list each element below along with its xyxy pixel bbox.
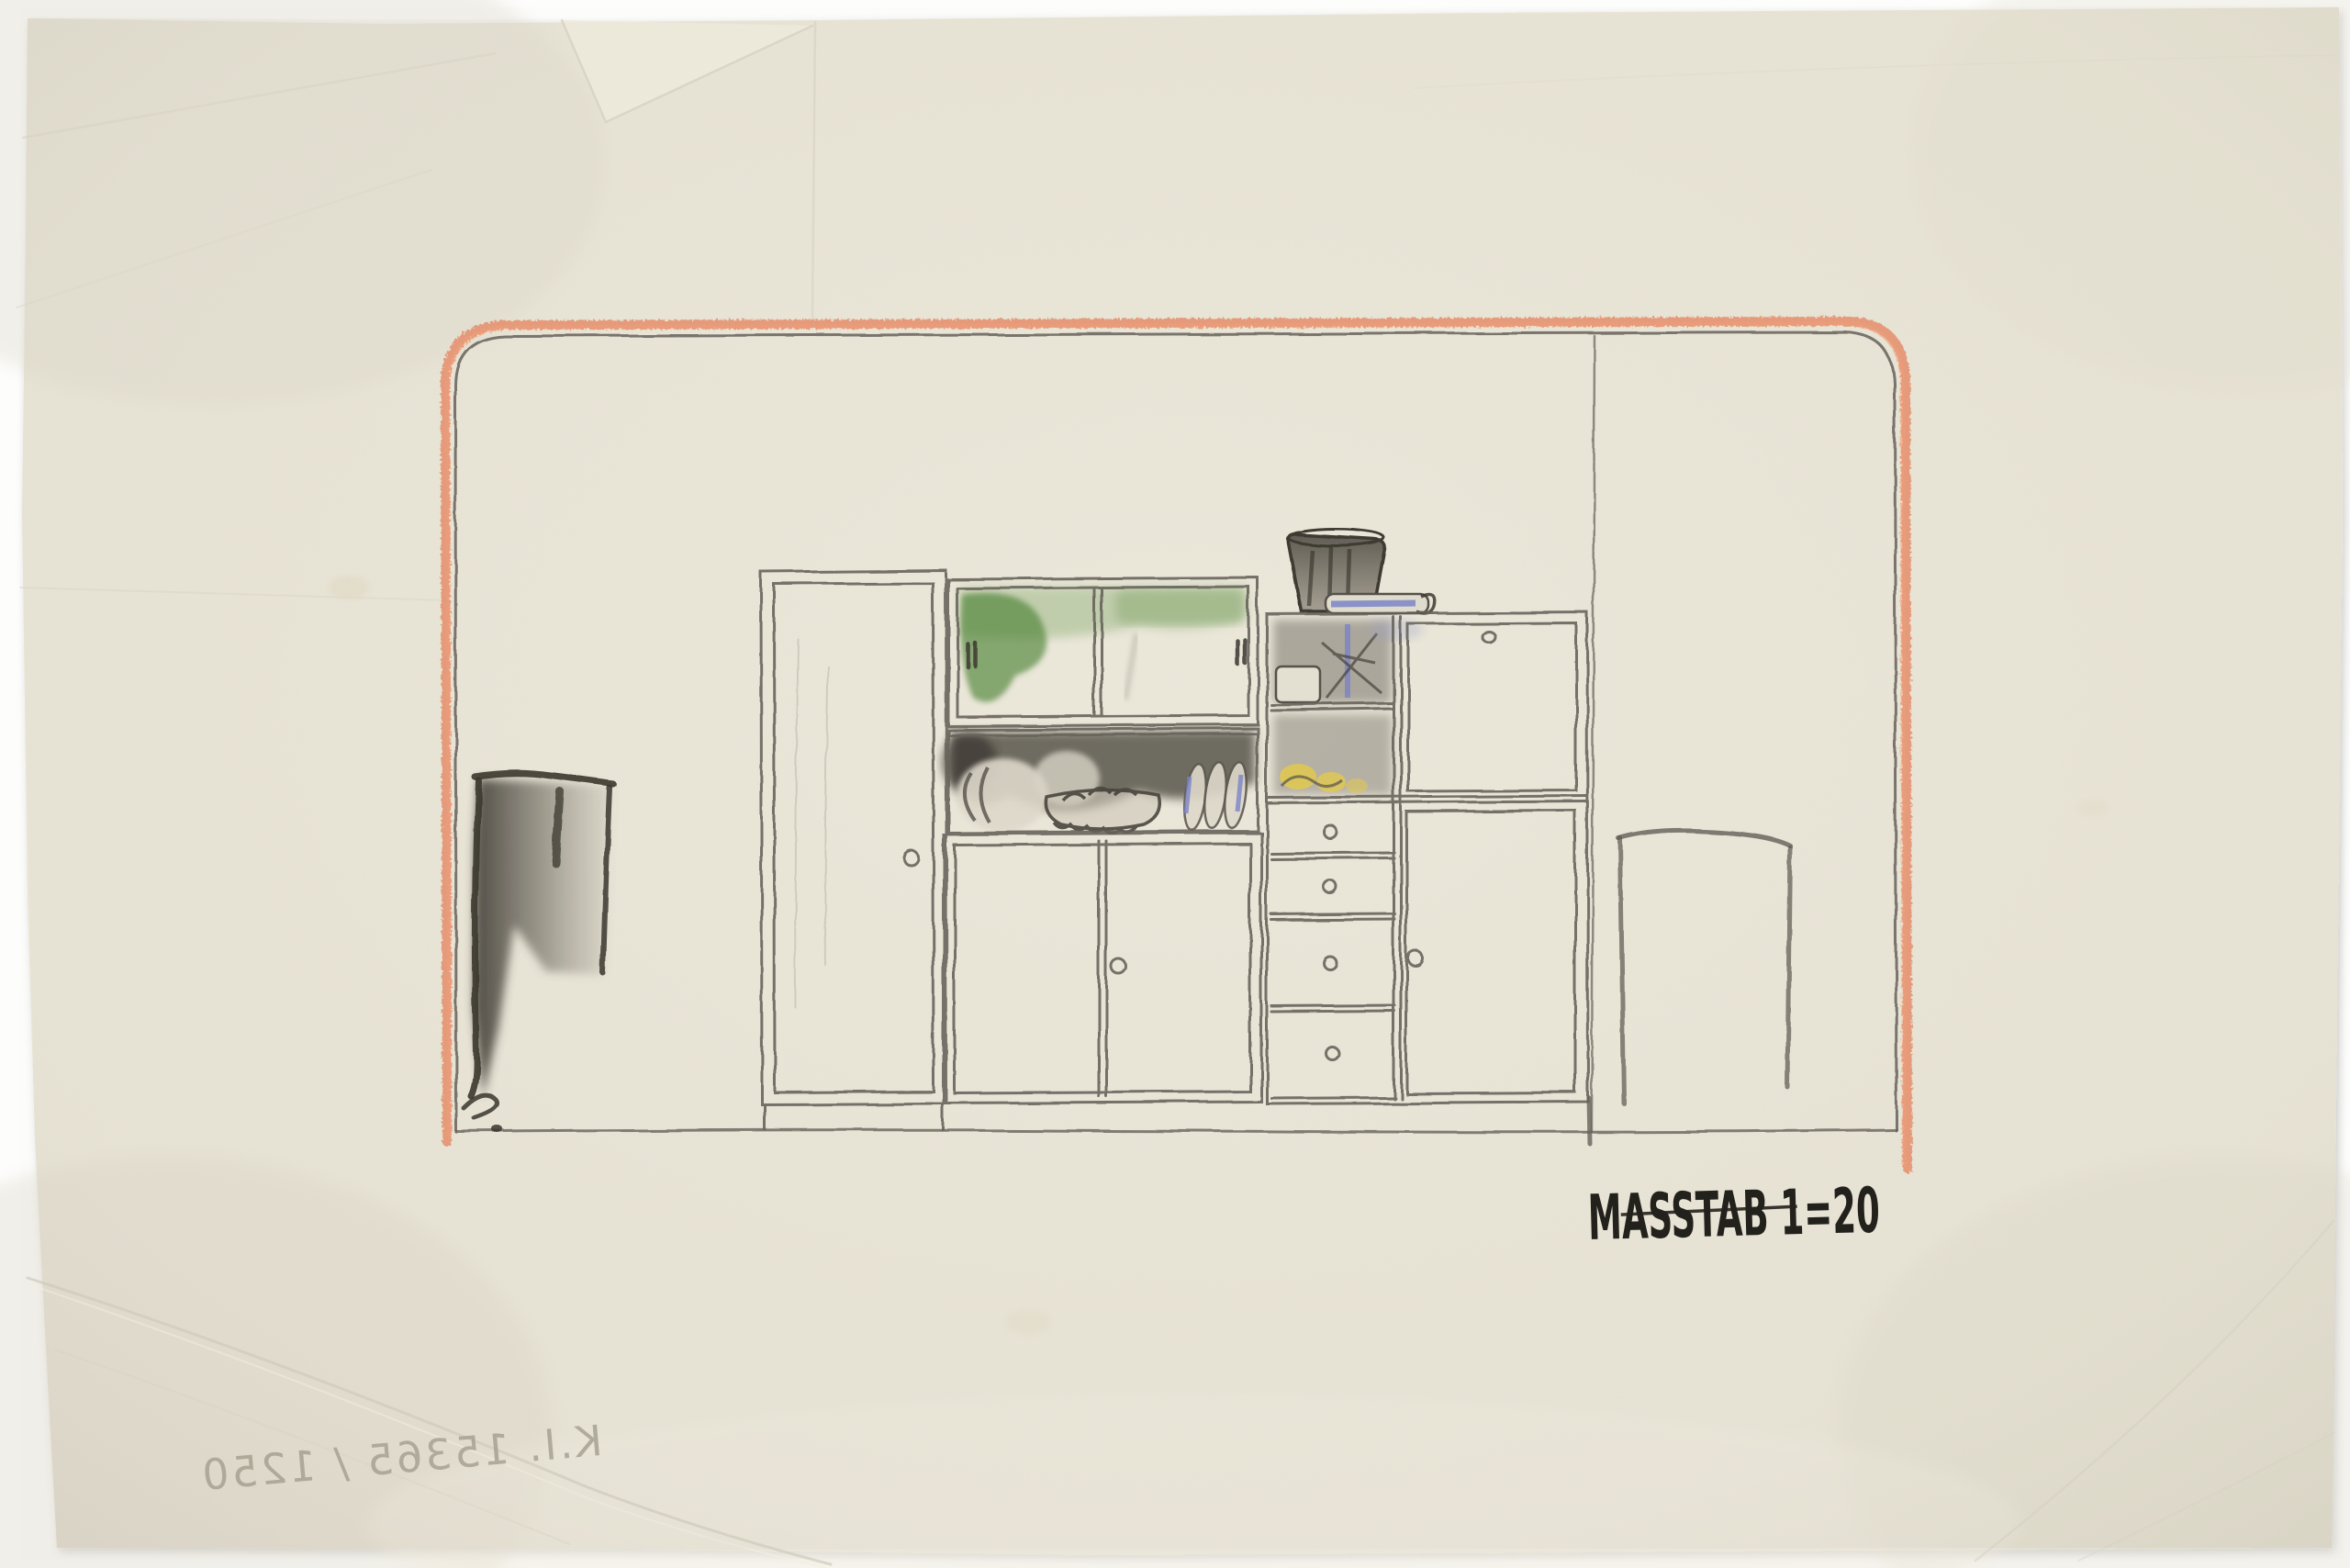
scanned-sketch-page: MASSTAB 1=20 K.I. 15365 / 1250 [0, 0, 2350, 1568]
stacked-plates-blue [1181, 761, 1250, 831]
plate-large [957, 758, 1048, 832]
dish-shelf-contents [942, 731, 1255, 834]
wall-line-dark-end [1589, 1098, 1590, 1144]
cup-sketch [1276, 666, 1320, 702]
sketch-canvas: MASSTAB 1=20 K.I. 15365 / 1250 [0, 0, 2350, 1568]
plate-with-blue-stripe [1326, 594, 1435, 613]
scale-caption: MASSTAB 1=20 [1587, 1175, 1881, 1255]
